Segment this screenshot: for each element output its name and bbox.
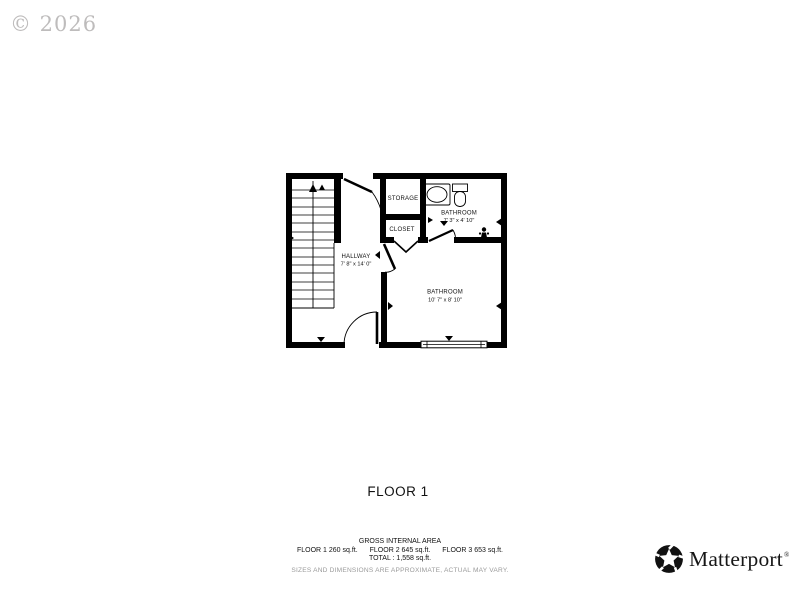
- matterport-pinwheel-icon: [654, 544, 684, 574]
- sink-vanity-icon: [424, 184, 450, 205]
- bathroom1-label: BATHROOM: [441, 211, 477, 217]
- dimension-marker-icon: [375, 251, 380, 259]
- floor-title: FLOOR 1: [0, 484, 796, 499]
- storage-label: STORAGE: [388, 196, 419, 202]
- floor-plan: HALLWAY 7' 8" x 14' 0" STORAGE CLOSET BA…: [280, 168, 512, 356]
- bathroom2-dims: 10' 7" x 8' 10": [428, 298, 462, 304]
- dimension-marker-icon: [388, 302, 393, 310]
- door-swing-icon: [384, 244, 395, 272]
- hallway-dims: 7' 8" x 14' 0": [341, 262, 372, 268]
- registered-trademark-mark: ®: [784, 551, 790, 559]
- floor2-area: FLOOR 2 645 sq.ft.: [370, 547, 431, 554]
- door-swing-icon: [429, 230, 455, 241]
- dimension-marker-icon: [317, 337, 325, 342]
- floor3-area: FLOOR 3 653 sq.ft.: [442, 547, 503, 554]
- bathroom2-label: BATHROOM: [427, 290, 463, 296]
- dimension-markers: [288, 217, 502, 342]
- page: © 2026: [0, 0, 800, 600]
- window-icon: [421, 341, 487, 348]
- floor1-area: FLOOR 1 260 sq.ft.: [297, 547, 358, 554]
- dimension-marker-icon: [496, 218, 502, 226]
- matterport-logo: Matterport®: [654, 544, 789, 574]
- toilet-icon: [453, 184, 468, 207]
- dimension-marker-icon: [428, 217, 433, 223]
- staircase: [292, 181, 334, 308]
- bathroom1-dims: 7' 3" x 4' 10": [444, 218, 475, 224]
- staircase-up-arrow-icon: [309, 184, 317, 192]
- matterport-wordmark: Matterport®: [689, 547, 789, 572]
- door-swing-icon: [344, 179, 381, 210]
- dimension-marker-icon: [496, 302, 502, 310]
- door-swing-icon: [344, 312, 377, 345]
- bifold-door-icon: [394, 241, 418, 252]
- closet-label: CLOSET: [389, 227, 414, 233]
- copyright-watermark: © 2026: [10, 12, 97, 36]
- dimension-marker-icon: [445, 336, 453, 341]
- hallway-label: HALLWAY: [342, 254, 371, 260]
